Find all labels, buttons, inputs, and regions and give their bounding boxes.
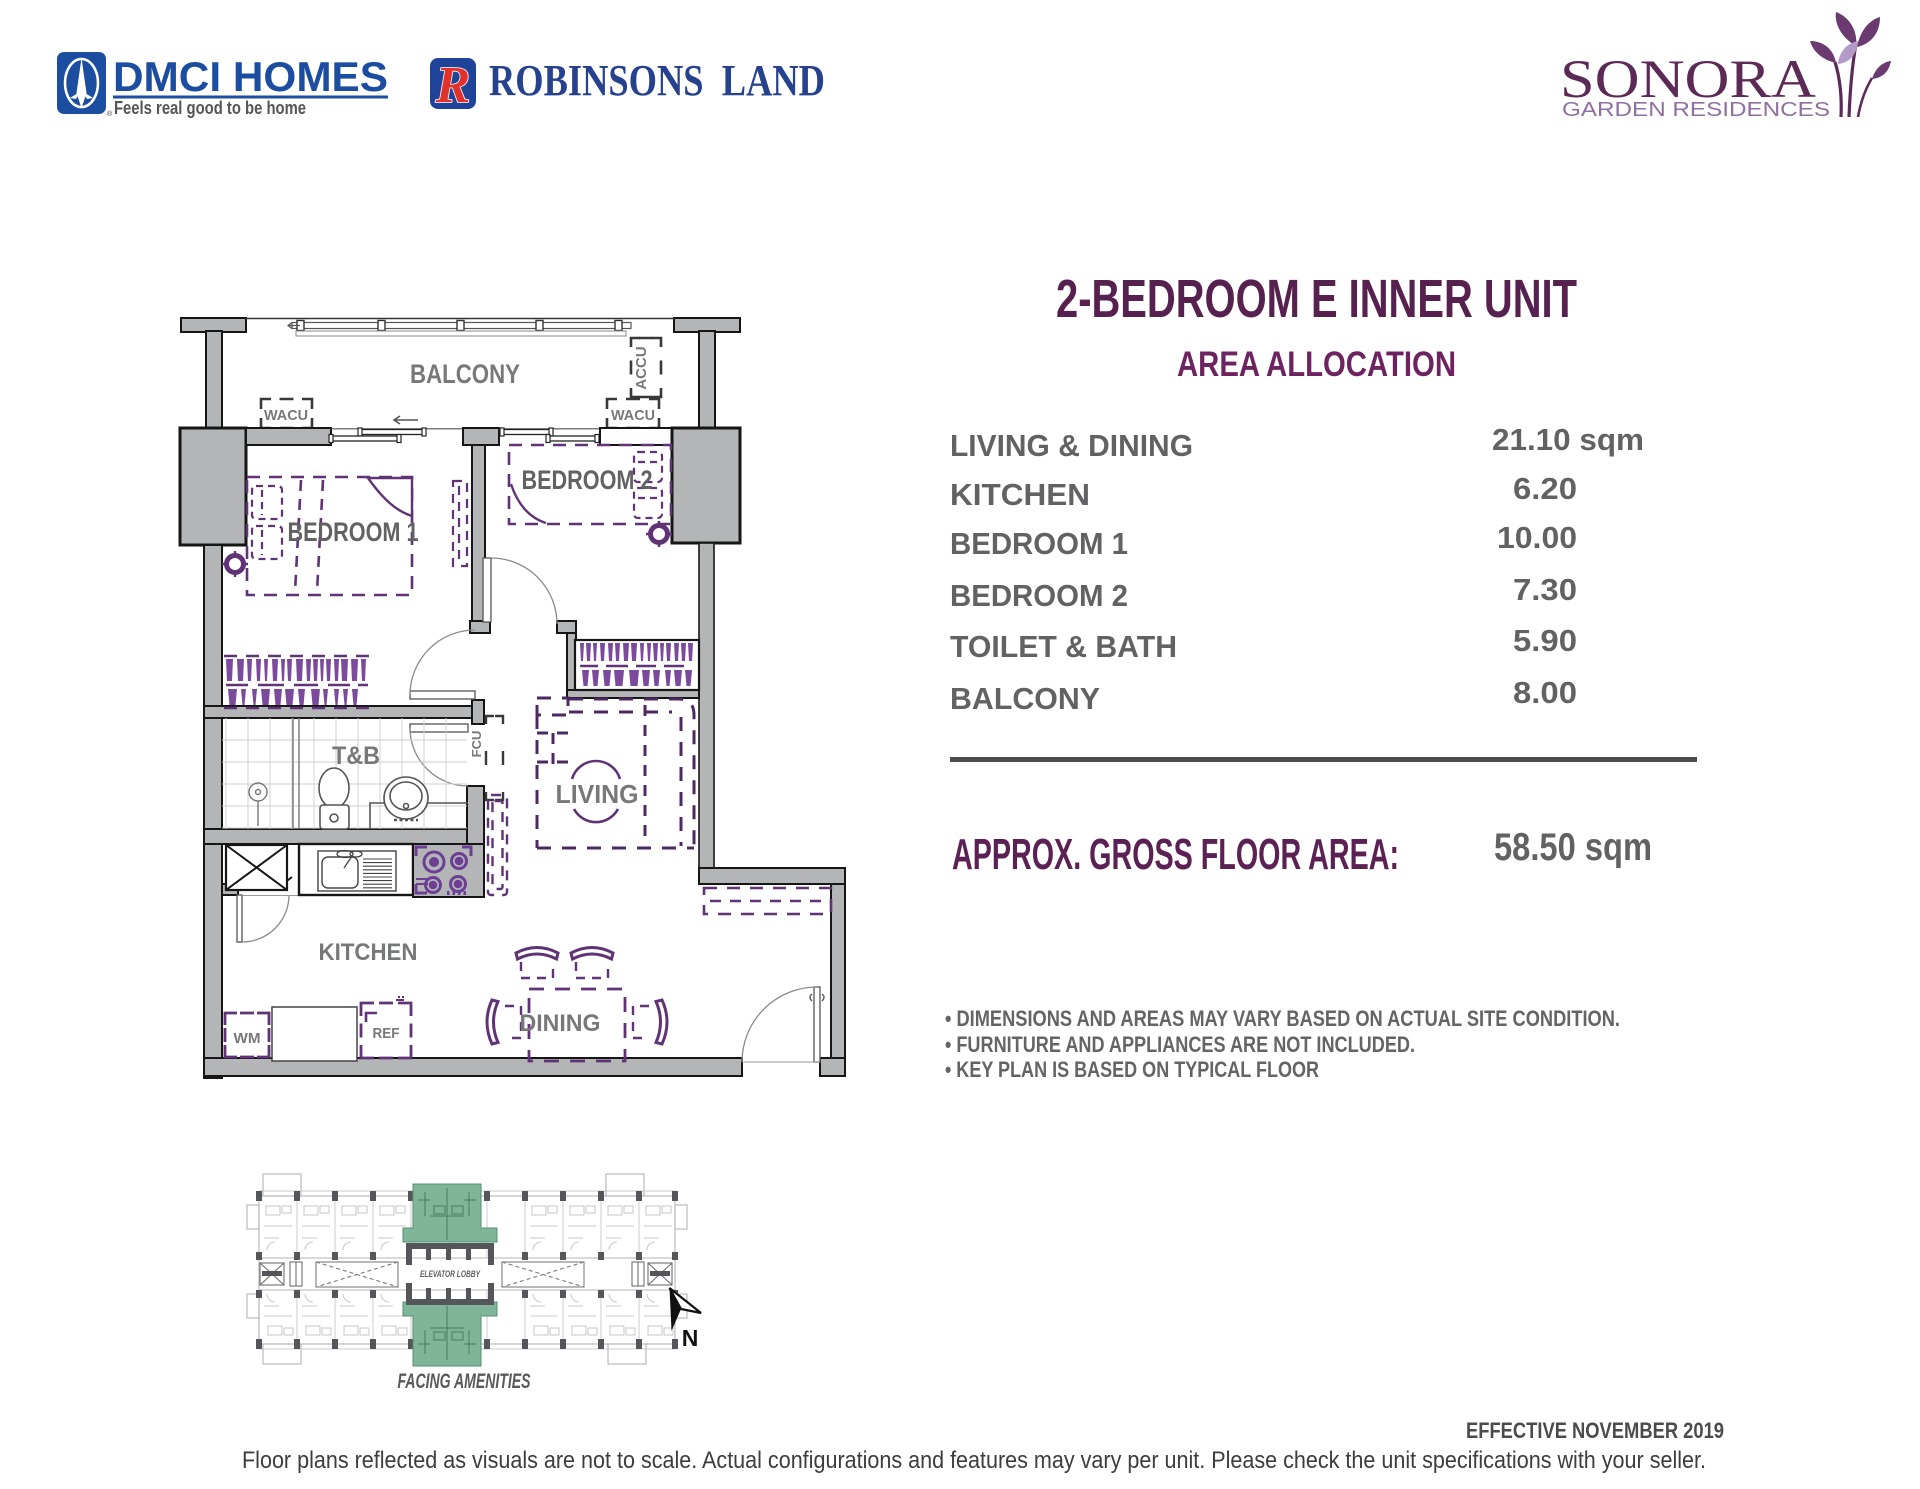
svg-text:KITCHEN: KITCHEN (950, 477, 1090, 512)
svg-text:BALCONY: BALCONY (410, 359, 520, 389)
svg-text:T&B: T&B (332, 742, 380, 770)
svg-text:BEDROOM 2: BEDROOM 2 (950, 578, 1128, 613)
svg-text:• KEY PLAN IS BASED ON TYPICAL: • KEY PLAN IS BASED ON TYPICAL FLOOR (945, 1057, 1319, 1082)
svg-text:LIVING & DINING: LIVING & DINING (950, 428, 1193, 463)
svg-text:58.50 sqm: 58.50 sqm (1494, 826, 1652, 869)
svg-text:EFFECTIVE NOVEMBER 2019: EFFECTIVE NOVEMBER 2019 (1466, 1418, 1724, 1443)
svg-text:WACU: WACU (611, 407, 655, 424)
svg-text:6.20: 6.20 (1513, 471, 1577, 506)
svg-text:®: ® (107, 110, 113, 118)
svg-text:TOILET & BATH: TOILET & BATH (950, 629, 1177, 664)
svg-text:LIVING: LIVING (556, 779, 639, 809)
svg-text:Feels real good to be home: Feels real good to be home (114, 97, 306, 118)
svg-text:2-BEDROOM E INNER UNIT: 2-BEDROOM E INNER UNIT (1056, 270, 1577, 329)
svg-text:ELEVATOR LOBBY: ELEVATOR LOBBY (420, 1269, 481, 1279)
svg-text:R: R (435, 57, 471, 114)
svg-text:WM: WM (234, 1030, 261, 1047)
svg-text:REF: REF (373, 1025, 400, 1042)
svg-text:BEDROOM 1: BEDROOM 1 (950, 526, 1128, 561)
svg-text:• FURNITURE AND APPLIANCES ARE: • FURNITURE AND APPLIANCES ARE NOT INCLU… (945, 1032, 1415, 1057)
svg-text:N: N (682, 1325, 699, 1351)
svg-text:10.00: 10.00 (1497, 520, 1577, 555)
svg-text:APPROX. GROSS FLOOR AREA:: APPROX. GROSS FLOOR AREA: (952, 830, 1399, 879)
svg-text:FCU: FCU (469, 731, 484, 758)
svg-text:ACCU: ACCU (633, 346, 650, 389)
svg-text:KITCHEN: KITCHEN (319, 939, 418, 966)
svg-text:ROBINSONS LAND: ROBINSONS LAND (489, 56, 825, 105)
svg-text:BEDROOM 2: BEDROOM 2 (522, 465, 653, 495)
svg-text:• DIMENSIONS AND AREAS MAY VAR: • DIMENSIONS AND AREAS MAY VARY BASED ON… (945, 1006, 1620, 1031)
svg-text:BALCONY: BALCONY (950, 681, 1100, 716)
svg-text:BEDROOM 1: BEDROOM 1 (288, 517, 419, 547)
svg-text:5.90: 5.90 (1513, 623, 1577, 658)
svg-text:WACU: WACU (264, 407, 308, 424)
svg-text:Floor plans reflected as visua: Floor plans reflected as visuals are not… (242, 1447, 1706, 1474)
svg-text:AREA ALLOCATION: AREA ALLOCATION (1177, 345, 1456, 384)
svg-text:GARDEN RESIDENCES: GARDEN RESIDENCES (1562, 99, 1830, 121)
svg-text:8.00: 8.00 (1513, 675, 1577, 710)
svg-text:DMCI HOMES: DMCI HOMES (113, 53, 388, 100)
svg-text:21.10 sqm: 21.10 sqm (1492, 422, 1644, 457)
svg-text:DINING: DINING (520, 1010, 601, 1037)
svg-text:7.30: 7.30 (1513, 572, 1577, 607)
svg-text:FACING AMENITIES: FACING AMENITIES (398, 1370, 531, 1393)
